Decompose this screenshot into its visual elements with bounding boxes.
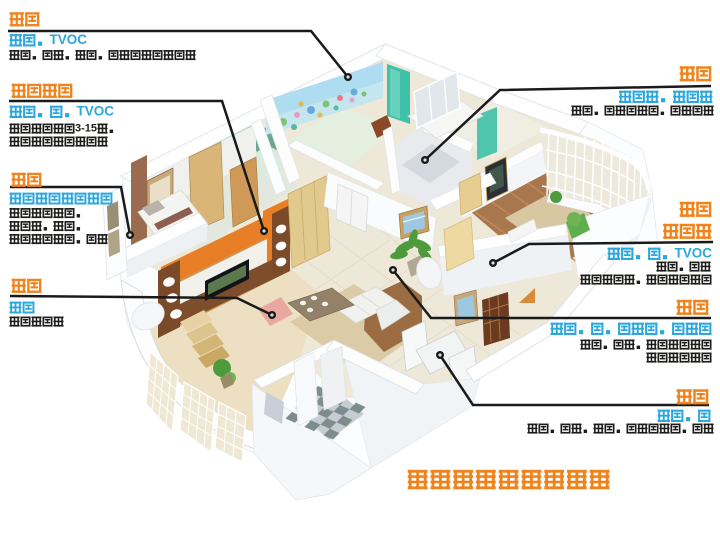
svg-text:TVOC: TVOC <box>77 104 115 119</box>
svg-text:TVOC: TVOC <box>50 32 88 47</box>
svg-text:TVOC: TVOC <box>675 246 713 261</box>
svg-text:3-15: 3-15 <box>75 123 97 135</box>
